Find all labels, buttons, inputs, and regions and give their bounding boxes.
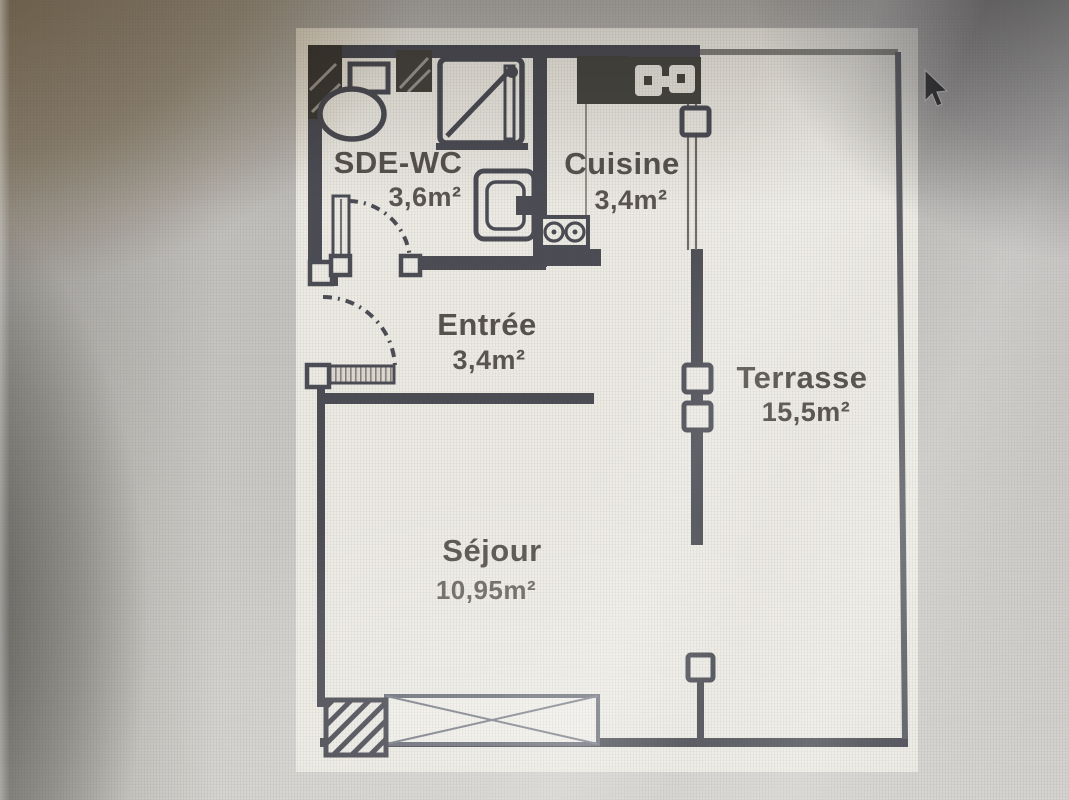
wall-top xyxy=(308,45,700,58)
wall-cuisine-bottom xyxy=(533,249,601,266)
washbasin-icon xyxy=(476,171,534,239)
shower-icon xyxy=(436,59,528,150)
room-area: 3,6m² xyxy=(388,182,461,212)
mouse-cursor-icon xyxy=(925,70,947,106)
room-name: Terrasse xyxy=(737,360,868,395)
stove-icon xyxy=(541,217,588,247)
room-name: SDE-WC xyxy=(334,145,463,180)
room-area: 15,5m² xyxy=(762,397,851,427)
entry-door-leaf xyxy=(329,366,394,383)
room-area: 10,95m² xyxy=(436,575,536,605)
floor-plan: SDE-WC 3,6m² Cuisine 3,4m² Entrée 3,4m² … xyxy=(0,0,1069,800)
kitchen-sink-icon xyxy=(629,57,701,104)
window-symbol xyxy=(386,696,598,744)
room-name: Séjour xyxy=(442,533,541,568)
kitchen-counter-icon xyxy=(577,56,629,104)
railing-post-stem xyxy=(697,678,704,740)
room-area: 3,4m² xyxy=(594,185,667,215)
room-label-entree: Entrée 3,4m² xyxy=(437,307,536,375)
wall-sde-bottom xyxy=(418,256,546,270)
room-name: Cuisine xyxy=(564,146,679,181)
hatched-column-symbol xyxy=(326,700,386,755)
room-area: 3,4m² xyxy=(452,345,525,375)
room-name: Entrée xyxy=(437,307,536,342)
wall-sejour-left xyxy=(317,387,325,707)
screen-photo: SDE-WC 3,6m² Cuisine 3,4m² Entrée 3,4m² … xyxy=(0,0,1069,800)
wall-entree-sejour xyxy=(320,393,594,404)
wall-sejour-terrasse xyxy=(691,249,703,545)
